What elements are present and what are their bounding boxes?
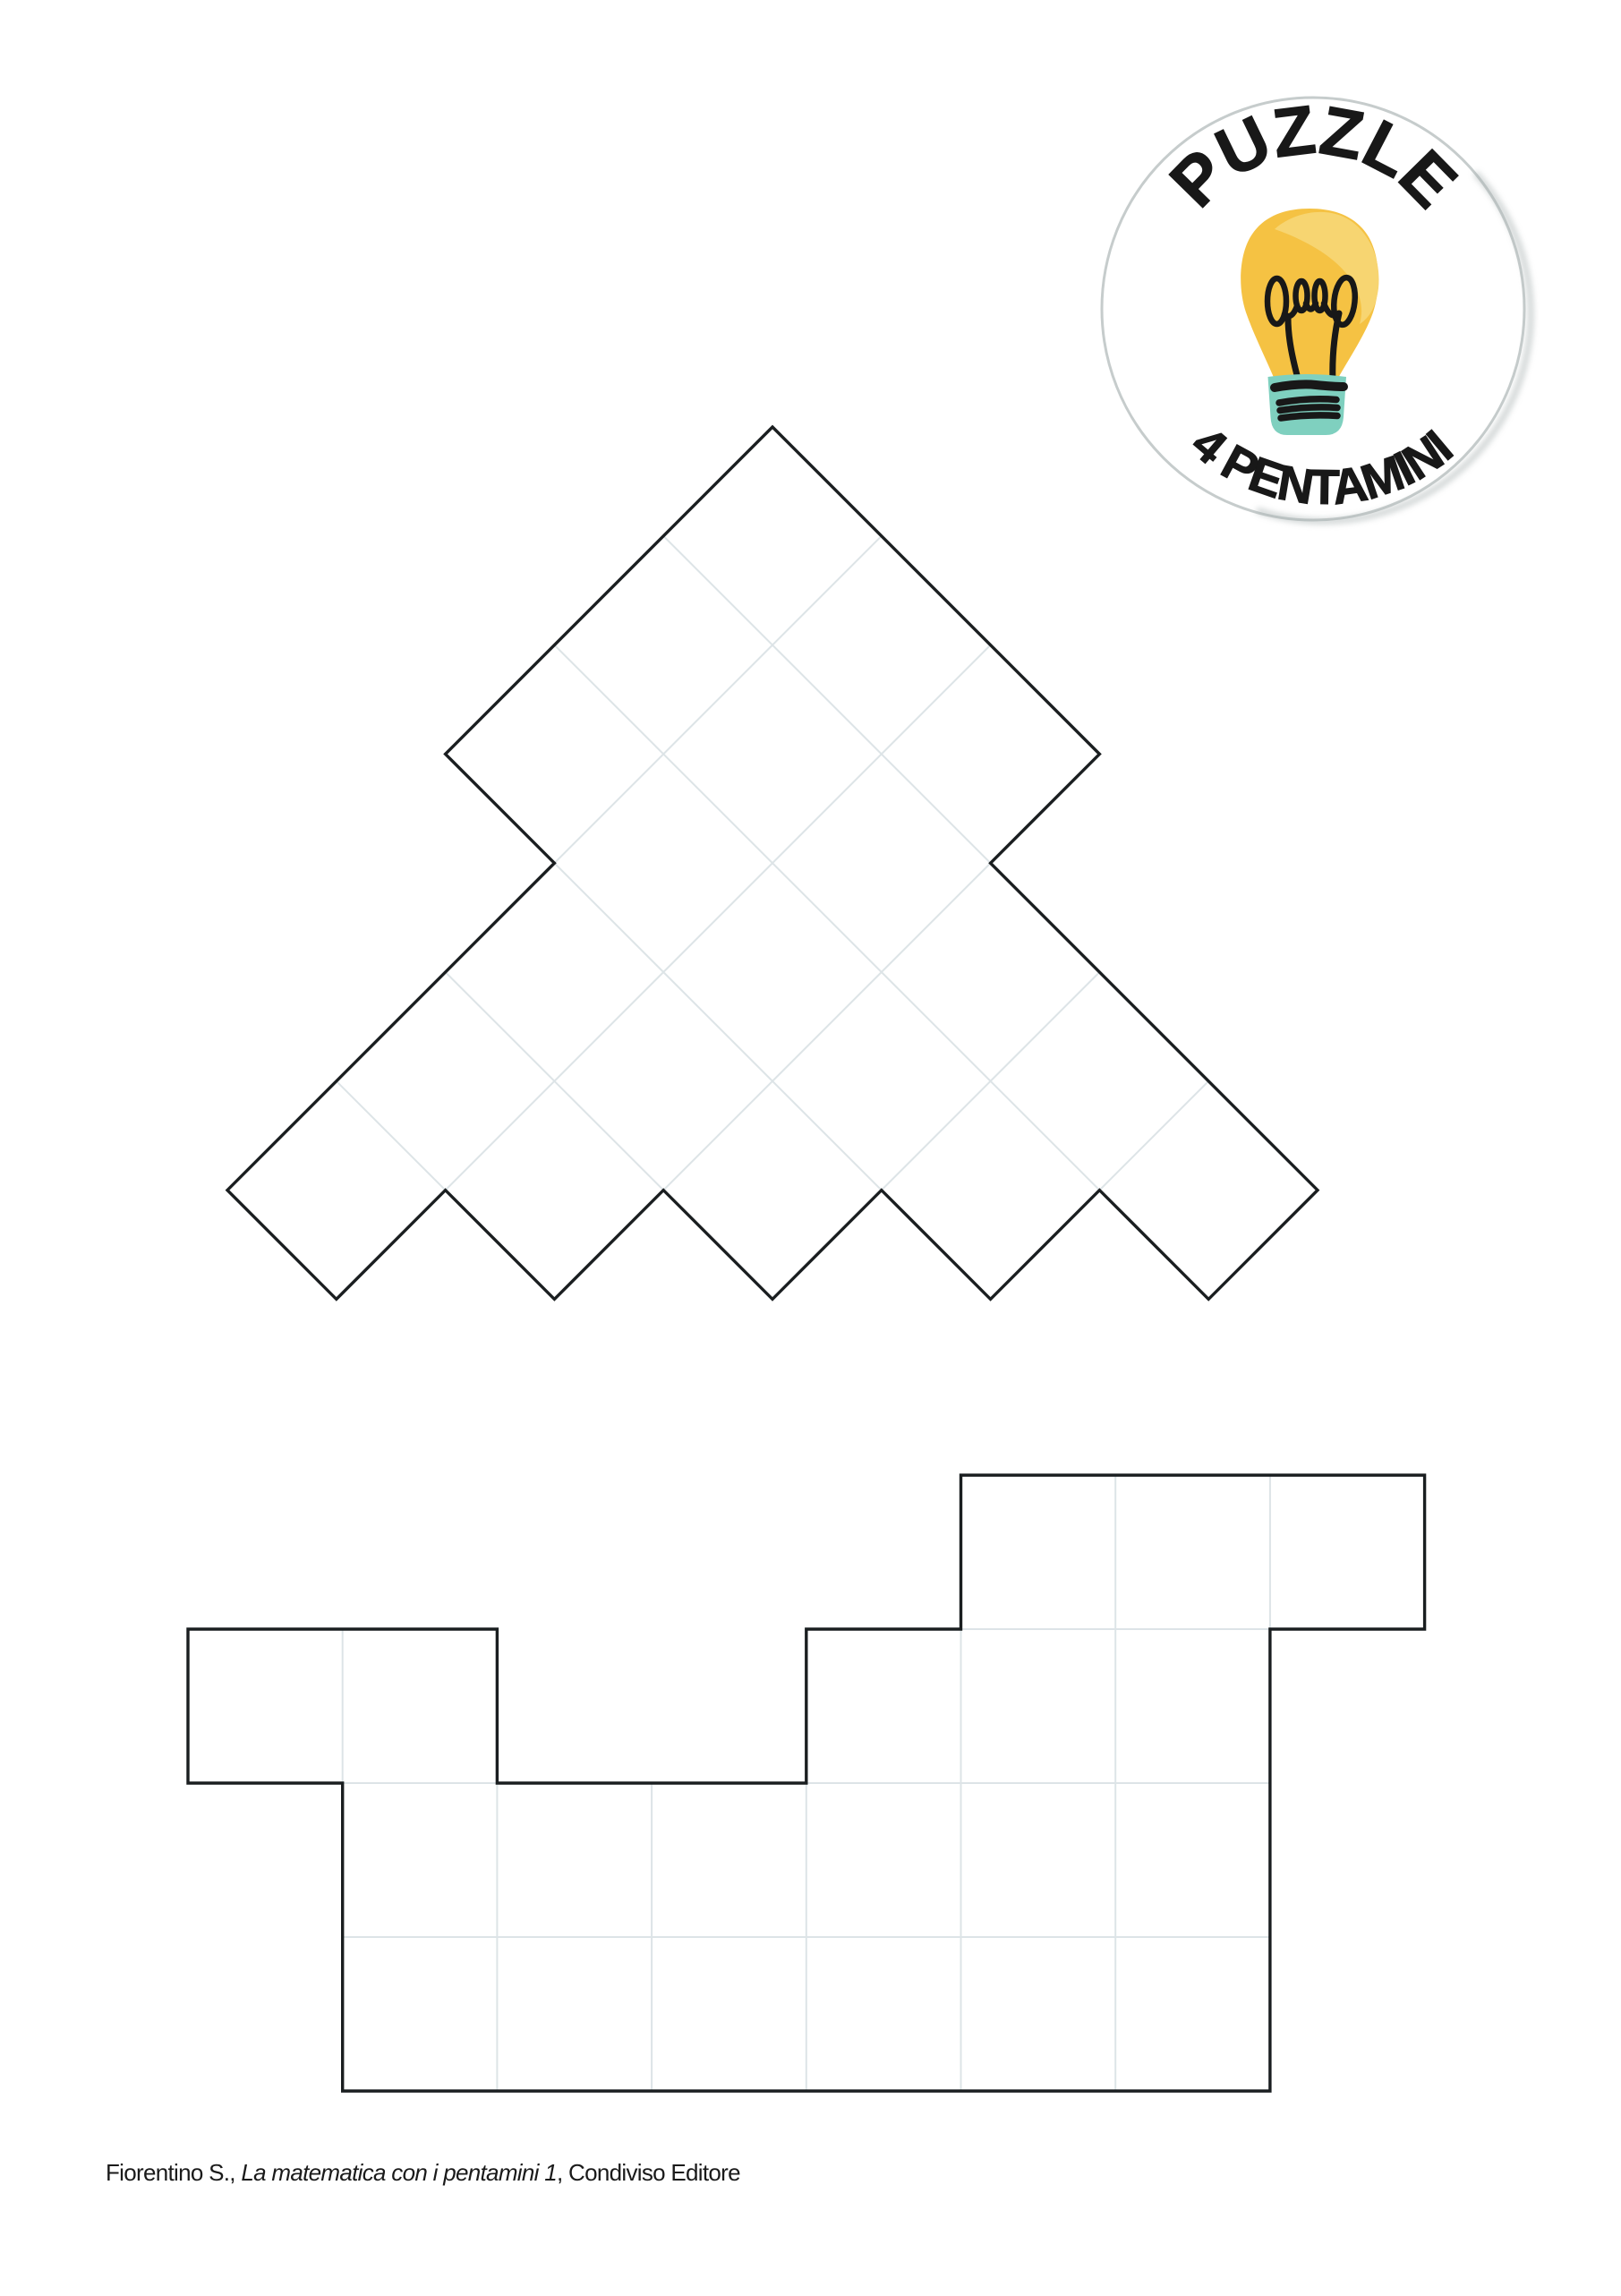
svg-text:Fiorentino S., La matematica c: Fiorentino S., La matematica con i penta… bbox=[106, 2159, 740, 2186]
